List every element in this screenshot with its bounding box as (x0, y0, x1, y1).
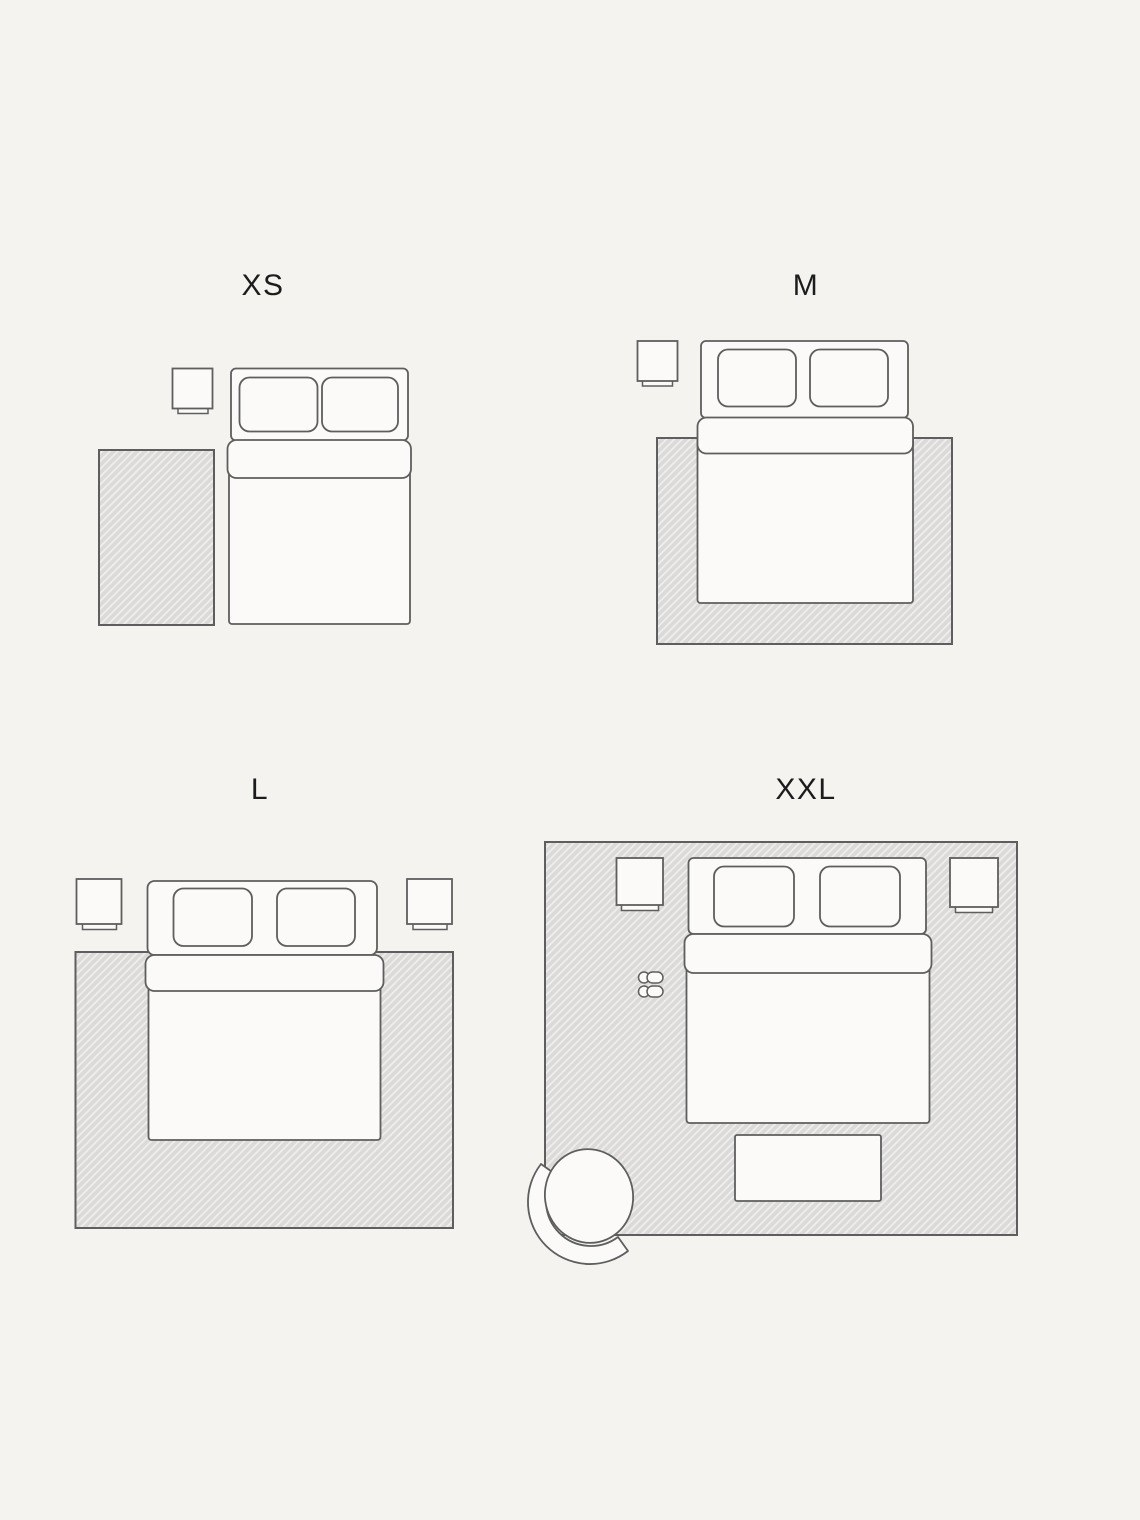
l-nightstand-left (77, 879, 122, 930)
xs-nightstand-top (173, 369, 213, 409)
xs-rug (99, 450, 214, 625)
size-label-l: L (251, 773, 269, 806)
xxl-bed (685, 858, 932, 1123)
xs-nightstand (173, 369, 213, 414)
xs-pillow-right (322, 378, 398, 432)
l-pillow-right (277, 889, 355, 947)
l-nightstand-right-top (407, 879, 452, 924)
m-bed-blanket-fold (698, 418, 914, 454)
xxl-bed-blanket-fold (685, 934, 932, 973)
m-nightstand (638, 341, 678, 386)
m-bed (698, 341, 914, 603)
size-label-m: M (793, 269, 820, 302)
xxl-bench (735, 1135, 881, 1201)
xxl-bed-duvet (687, 955, 930, 1123)
size-label-xxl: XXL (775, 773, 836, 806)
xxl-nightstand-right (950, 858, 998, 913)
xs-bed-duvet (229, 460, 410, 624)
xxl-nightstand-left-top (617, 858, 664, 905)
slipper-top (639, 972, 664, 983)
m-pillow-left (718, 350, 796, 407)
xs-bed (228, 369, 412, 625)
xxl-nightstand-left (617, 858, 664, 911)
xs-pillow-left (240, 378, 318, 432)
l-bed-duvet (149, 970, 381, 1140)
m-pillow-right (810, 350, 888, 407)
l-bed (146, 881, 384, 1140)
xxl-pillow-left (714, 867, 794, 927)
l-nightstand-left-top (77, 879, 122, 924)
m-nightstand-top (638, 341, 678, 381)
l-nightstand-right (407, 879, 452, 930)
m-bed-duvet (698, 435, 914, 603)
l-bed-blanket-fold (146, 955, 384, 991)
xxl-nightstand-right-top (950, 858, 998, 907)
slipper-toe (647, 986, 663, 997)
xxl-pillow-right (820, 867, 900, 927)
xs-bed-blanket-fold (228, 440, 412, 478)
slipper-toe (647, 972, 663, 983)
layout-xxl: XXL (528, 773, 1017, 1264)
slipper-bottom (639, 986, 664, 997)
l-pillow-left (174, 889, 253, 947)
rug-size-guide-diagram: XS M L (0, 0, 1140, 1520)
canvas-background (0, 0, 1140, 1520)
size-label-xs: XS (241, 269, 284, 302)
